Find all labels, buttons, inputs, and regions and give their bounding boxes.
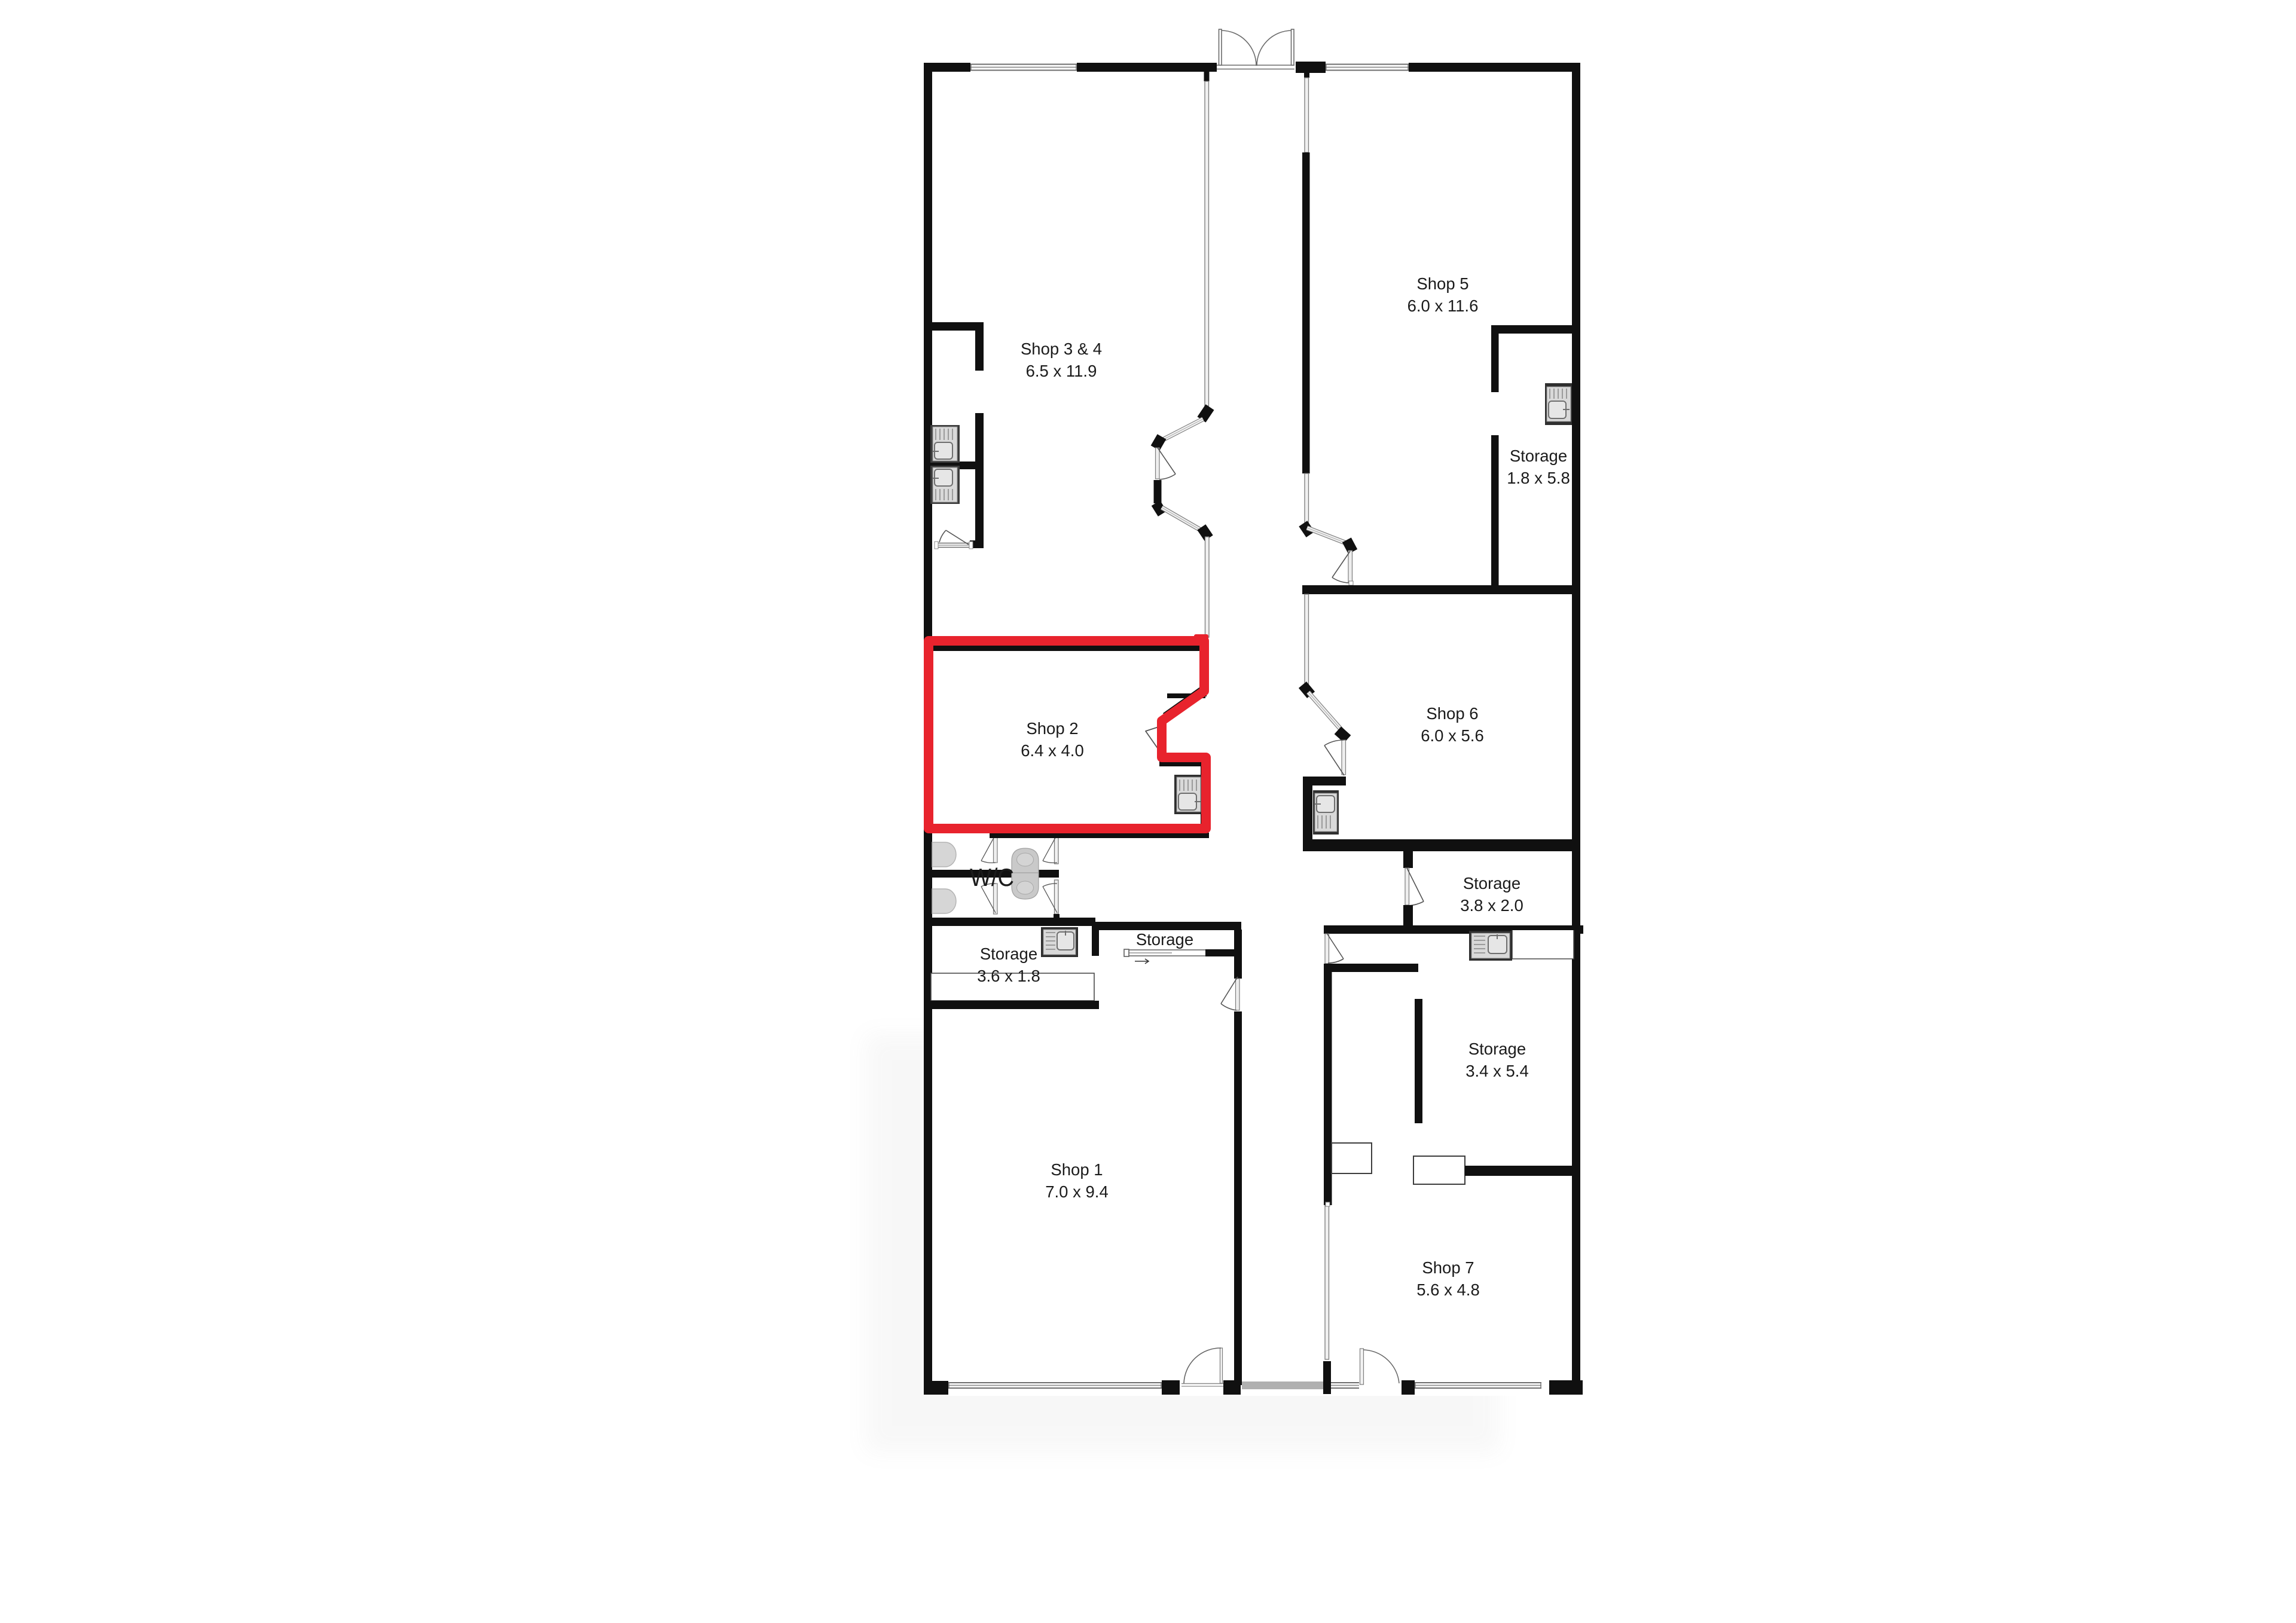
svg-text:Shop 7: Shop 7: [1422, 1258, 1474, 1277]
svg-text:Shop 6: Shop 6: [1426, 704, 1478, 723]
svg-text:3.8 x 2.0: 3.8 x 2.0: [1460, 896, 1523, 915]
svg-text:Storage: Storage: [1136, 930, 1193, 949]
svg-text:Shop 1: Shop 1: [1051, 1160, 1103, 1179]
svg-text:Shop 2: Shop 2: [1026, 719, 1078, 738]
svg-text:Storage: Storage: [980, 945, 1037, 963]
svg-text:Storage: Storage: [1510, 447, 1567, 465]
svg-text:Shop 3 & 4: Shop 3 & 4: [1021, 340, 1102, 358]
svg-text:7.0 x 9.4: 7.0 x 9.4: [1045, 1182, 1109, 1201]
svg-text:3.6 x 1.8: 3.6 x 1.8: [977, 967, 1040, 985]
svg-text:6.4 x 4.0: 6.4 x 4.0: [1021, 741, 1084, 760]
svg-text:6.5 x 11.9: 6.5 x 11.9: [1026, 362, 1097, 380]
svg-text:1.8 x 5.8: 1.8 x 5.8: [1507, 469, 1570, 487]
svg-text:6.0 x 5.6: 6.0 x 5.6: [1421, 726, 1484, 745]
svg-text:5.6 x 4.8: 5.6 x 4.8: [1416, 1280, 1480, 1299]
svg-text:3.4 x 5.4: 3.4 x 5.4: [1465, 1062, 1529, 1080]
svg-text:Storage: Storage: [1463, 874, 1521, 893]
svg-text:Storage: Storage: [1468, 1040, 1526, 1058]
svg-text:W/C: W/C: [970, 863, 1014, 891]
svg-text:6.0 x 11.6: 6.0 x 11.6: [1407, 297, 1479, 315]
svg-text:Shop 5: Shop 5: [1416, 274, 1468, 293]
